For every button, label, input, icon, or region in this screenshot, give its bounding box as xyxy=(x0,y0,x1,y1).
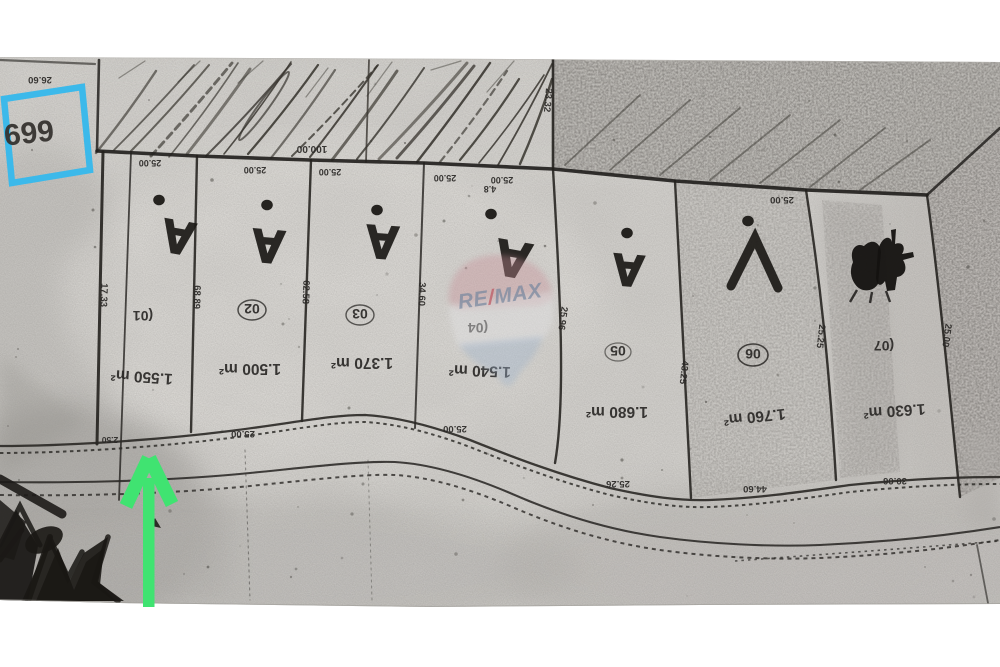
svg-text:25.26: 25.26 xyxy=(606,478,630,489)
svg-text:25.00: 25.00 xyxy=(443,423,467,434)
svg-text:44.60: 44.60 xyxy=(743,483,767,494)
svg-text:699: 699 xyxy=(2,115,55,153)
svg-text:2.50: 2.50 xyxy=(101,435,118,445)
svg-text:34.60: 34.60 xyxy=(416,282,428,306)
svg-text:25.00: 25.00 xyxy=(491,175,514,185)
svg-text:A: A xyxy=(249,219,287,274)
svg-text:100.00: 100.00 xyxy=(296,143,327,154)
svg-text:23.32: 23.32 xyxy=(541,88,554,113)
svg-text:25.00: 25.00 xyxy=(770,194,794,205)
svg-text:26.60: 26.60 xyxy=(28,74,52,85)
svg-text:1.500 m²: 1.500 m² xyxy=(219,360,281,377)
svg-text:25.00: 25.00 xyxy=(139,158,162,168)
svg-text:4.8: 4.8 xyxy=(484,184,497,194)
svg-text:68.89: 68.89 xyxy=(191,285,203,309)
svg-text:1.370 m²: 1.370 m² xyxy=(331,354,393,371)
svg-text:1.680 m²: 1.680 m² xyxy=(586,403,648,420)
svg-text:05: 05 xyxy=(610,343,626,359)
svg-text:(01: (01 xyxy=(133,308,153,324)
svg-text:A: A xyxy=(364,215,401,269)
svg-text:03: 03 xyxy=(352,306,368,322)
svg-text:06: 06 xyxy=(745,346,761,362)
svg-text:02: 02 xyxy=(244,301,260,317)
svg-text:30.06: 30.06 xyxy=(883,475,907,486)
svg-text:17.33: 17.33 xyxy=(98,283,110,307)
svg-text:(07: (07 xyxy=(874,338,894,354)
svg-text:A: A xyxy=(610,244,646,296)
svg-text:62.58: 62.58 xyxy=(300,280,312,304)
svg-text:25.00: 25.00 xyxy=(319,167,342,177)
svg-text:25.00: 25.00 xyxy=(244,165,267,175)
svg-text:25.00: 25.00 xyxy=(434,173,457,183)
svg-text:25.00: 25.00 xyxy=(231,428,255,439)
